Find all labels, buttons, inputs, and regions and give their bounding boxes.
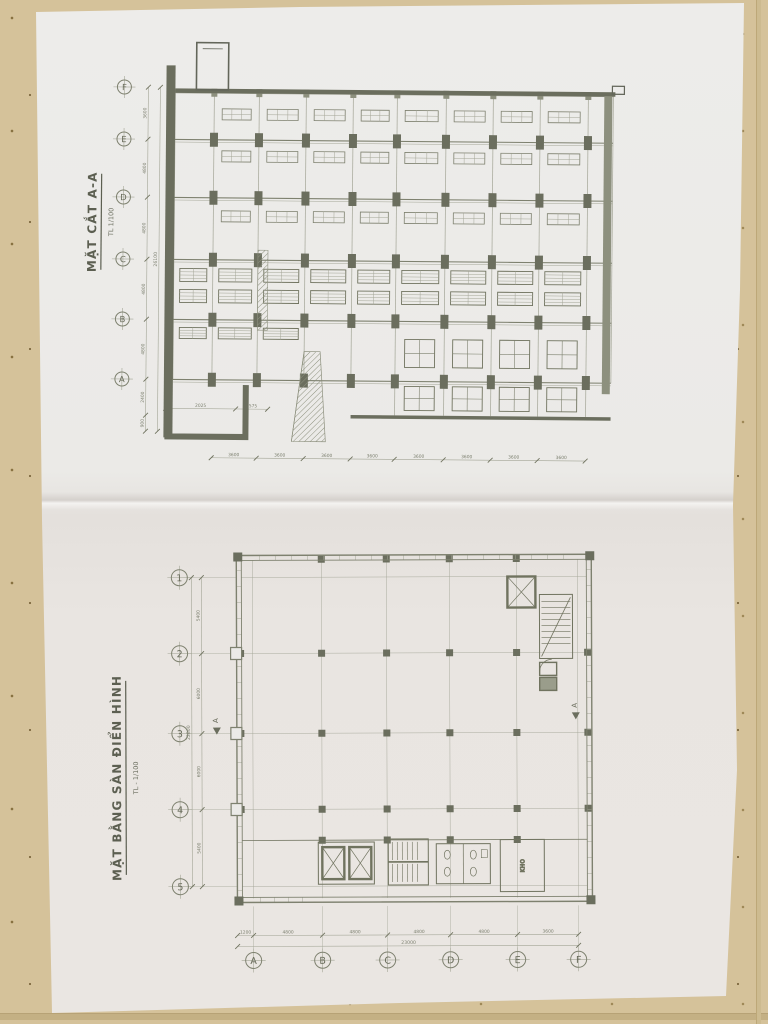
tile-grout-vertical (757, 0, 761, 1024)
dimension-value: 3600 (321, 453, 332, 459)
plan-column-bubbles: ABCDEF (241, 905, 590, 972)
left-wall-pilaster-2 (231, 647, 242, 659)
dimension-value: 3600 (542, 929, 553, 935)
beam-column-block (440, 375, 448, 389)
floor-plan-drawing: MẶT BẰNG SÀN ĐIỂN HÌNH TL - 1/100 12345 … (69, 521, 691, 1018)
dimension-total-value: 22800 (186, 725, 192, 740)
beam-column-block (301, 254, 309, 268)
dimension-value: 4800 (141, 283, 147, 294)
beam-column-block (487, 315, 495, 329)
beam-column-block (535, 194, 543, 208)
section-ground-slab (351, 415, 611, 421)
beam-column-block (302, 134, 310, 148)
column-square (513, 729, 520, 736)
column-square (383, 555, 390, 562)
dimension-value: 3600 (508, 455, 519, 461)
section-entry-stair-hatch (291, 351, 326, 441)
dimension-total-value: 23000 (401, 940, 416, 946)
column-square (447, 805, 454, 812)
beam-column-block (347, 374, 355, 388)
beam-column-block (391, 314, 399, 328)
wc-fixture-3 (470, 850, 476, 859)
column-square (383, 649, 390, 656)
column-square (384, 805, 391, 812)
plan-service-core: KHO (242, 838, 587, 892)
beam-column-block (535, 256, 543, 270)
stair-northeast-flight-line (541, 597, 570, 656)
column-square (318, 650, 325, 657)
column-square (318, 730, 325, 737)
plan-grid-lines (241, 559, 587, 898)
plan-bottom-dimension-line: 12004800480048004800360023000 (235, 928, 581, 948)
section-title: MẶT CẮT A-A (83, 171, 100, 272)
section-structure-grid (173, 88, 614, 417)
dimension-value: 3600 (274, 453, 285, 459)
beam-column-block (534, 376, 542, 390)
plan-grid-line-h (242, 808, 587, 809)
corner-pilaster-nw (233, 552, 242, 561)
grid-bubble-label: D (120, 193, 127, 203)
dimension-line (211, 458, 585, 461)
beam-column-block (254, 191, 262, 205)
corner-pilaster-se (586, 895, 595, 904)
section-left-dimension-line: 36004800480048004800240090026100 (140, 85, 163, 434)
door-swing-arc (540, 659, 552, 671)
column-square (446, 649, 453, 656)
column-square (514, 805, 521, 812)
photo-of-blueprint: MẶT CẮT A-A TL 1/100 FEDCBA 360048004800… (0, 0, 768, 1024)
section-scale: TL 1/100 (107, 208, 115, 237)
corner-pilaster-ne (585, 551, 594, 560)
beam-column-block (440, 315, 448, 329)
beam-column-block (347, 314, 355, 328)
beam-column-block (392, 254, 400, 268)
section-title-block: MẶT CẮT A-A TL 1/100 (83, 171, 116, 272)
section-marker-right-label: A (571, 703, 579, 708)
dimension-value: 2400 (140, 391, 146, 402)
beam-column-block (582, 316, 590, 330)
grid-bubble-label: A (250, 956, 257, 967)
grid-bubble-label: B (319, 956, 326, 967)
dimension-value: 3600 (461, 454, 472, 460)
dimension-value: 900 (140, 419, 146, 428)
beam-column-block (442, 135, 450, 149)
plan-northeast-core (507, 576, 572, 690)
dimension-value: 4800 (142, 162, 148, 173)
grid-bubble-label: E (121, 135, 126, 145)
grid-bubble-label: F (576, 955, 582, 966)
beam-column-block (391, 374, 399, 388)
dimension-value: 3600 (556, 455, 567, 461)
dimension-line (201, 578, 202, 887)
beam-column-block (392, 192, 400, 206)
beam-column-block (583, 194, 591, 208)
column-square (318, 556, 325, 563)
beam-column-block (255, 133, 263, 147)
plan-grid-line-v (577, 559, 578, 897)
dimension-value: 6000 (196, 766, 202, 777)
wc-fixture-2 (444, 867, 450, 876)
dimension-value: 3600 (413, 454, 424, 460)
dimension-value: 3600 (142, 107, 148, 118)
beam-column-block (441, 255, 449, 269)
beam-column-block (209, 191, 217, 205)
section-marker-left-label: A (212, 718, 220, 723)
column-square (513, 649, 520, 656)
plan-inner-wall-line (241, 559, 587, 897)
beam-column-block (209, 253, 217, 267)
beam-column-block (349, 134, 357, 148)
grid-bubble-label: C (384, 956, 391, 967)
beam-column-block (301, 192, 309, 206)
grid-bubble-label: 4 (177, 805, 183, 816)
plan-perimeter-walls (230, 551, 595, 905)
beam-column-block (208, 313, 216, 327)
dimension-value: 6000 (196, 688, 202, 699)
section-roof-penthouse (196, 43, 228, 90)
beam-column-block (584, 136, 592, 150)
dimension-value: 4800 (478, 929, 489, 935)
grid-bubble-label: B (119, 315, 125, 325)
plan-title: MẶT BẰNG SÀN ĐIỂN HÌNH (107, 675, 125, 881)
section-title-underline (101, 174, 102, 270)
stair-northeast-treads (541, 601, 570, 643)
plan-grid-line-h (242, 732, 587, 733)
beam-column-block (441, 193, 449, 207)
beam-column-block (300, 314, 308, 328)
beam-column-block (536, 136, 544, 150)
dimension-value: 3600 (228, 452, 239, 458)
corner-pilaster-sw (234, 896, 243, 905)
grid-bubble-label: 5 (177, 882, 183, 893)
column-square (446, 555, 453, 562)
grid-bubble-label: E (515, 955, 521, 966)
plan-grid-line-v (252, 560, 253, 898)
dimension-value: 4800 (141, 222, 147, 233)
beam-column-block (534, 316, 542, 330)
dimension-total-value: 26100 (153, 252, 159, 267)
wc-sink (481, 850, 487, 858)
plan-grid-line-h (242, 652, 587, 653)
section-drawing: MẶT CẮT A-A TL 1/100 FEDCBA 360048004800… (53, 11, 657, 491)
grid-bubble-label: A (119, 375, 125, 385)
beam-column-block (488, 193, 496, 207)
beam-column-block (210, 133, 218, 147)
plan-grid-line-v (386, 560, 387, 898)
grid-bubble-label: F (122, 83, 127, 93)
column-square (319, 806, 326, 813)
beam-column-block (582, 376, 590, 390)
paper-fold-crease (0, 492, 768, 510)
beam-column-block (208, 373, 216, 387)
section-right-wall (602, 96, 613, 394)
plan-left-dimension-line: 540060006000540022800 (185, 575, 204, 889)
dimension-value: 1200 (240, 930, 251, 936)
beam-column-block (583, 256, 591, 270)
dimension-value: 4800 (349, 929, 360, 935)
grid-bubble-label: 3 (177, 729, 183, 740)
section-marker-right-arrow (572, 712, 580, 719)
beam-column-block (487, 375, 495, 389)
dimension-value: 4800 (413, 929, 424, 935)
storage-room-label: KHO (520, 859, 526, 873)
section-bottom-dimension-line: 36003600360036003600360036003600 (209, 452, 588, 464)
section-stair-dimension-line: 20251575 (163, 403, 270, 412)
plan-grid-line-h (242, 885, 587, 886)
column-square (585, 805, 592, 812)
column-square (584, 649, 591, 656)
plan-section-cut-markers: A A (212, 703, 580, 735)
service-shaft-2 (540, 677, 557, 690)
beam-column-block (348, 192, 356, 206)
section-lift-shaft-hatch (257, 250, 268, 330)
column-square (446, 729, 453, 736)
left-wall-pilaster-3 (231, 727, 242, 739)
beam-column-block (489, 135, 497, 149)
beam-column-block (393, 134, 401, 148)
wc-fixture-4 (470, 867, 476, 876)
dimension-value: 4800 (140, 343, 146, 354)
grid-bubble-label: 2 (177, 649, 183, 660)
dimension-value: 3600 (367, 453, 378, 459)
beam-column-block (253, 373, 261, 387)
plan-title-underline (126, 681, 127, 875)
grid-bubble-label: C (120, 255, 126, 265)
column-square (584, 729, 591, 736)
beam-column-block (348, 254, 356, 268)
wc-fixture-1 (444, 850, 450, 859)
dimension-value: 5400 (196, 610, 202, 621)
column-square (383, 729, 390, 736)
left-wall-pilaster-4 (231, 803, 242, 815)
plan-title-block: MẶT BẰNG SÀN ĐIỂN HÌNH TL - 1/100 (107, 675, 141, 881)
dimension-value: 4800 (282, 930, 293, 936)
beam-column-block (488, 255, 496, 269)
grid-bubble-label: D (447, 955, 454, 966)
dimension-value: 5400 (196, 842, 202, 853)
grid-bubble-label: 1 (176, 573, 182, 584)
plan-grid-line-v (449, 560, 450, 898)
plan-scale: TL - 1/100 (132, 761, 140, 795)
plan-structural-columns (237, 555, 592, 844)
column-square (513, 555, 520, 562)
tile-grout-horizontal (0, 1014, 768, 1020)
blueprint-paper-sheet: MẶT CẮT A-A TL 1/100 FEDCBA 360048004800… (0, 0, 768, 1024)
dimension-value: 2025 (195, 403, 206, 409)
plan-grid-line-v (516, 560, 517, 898)
